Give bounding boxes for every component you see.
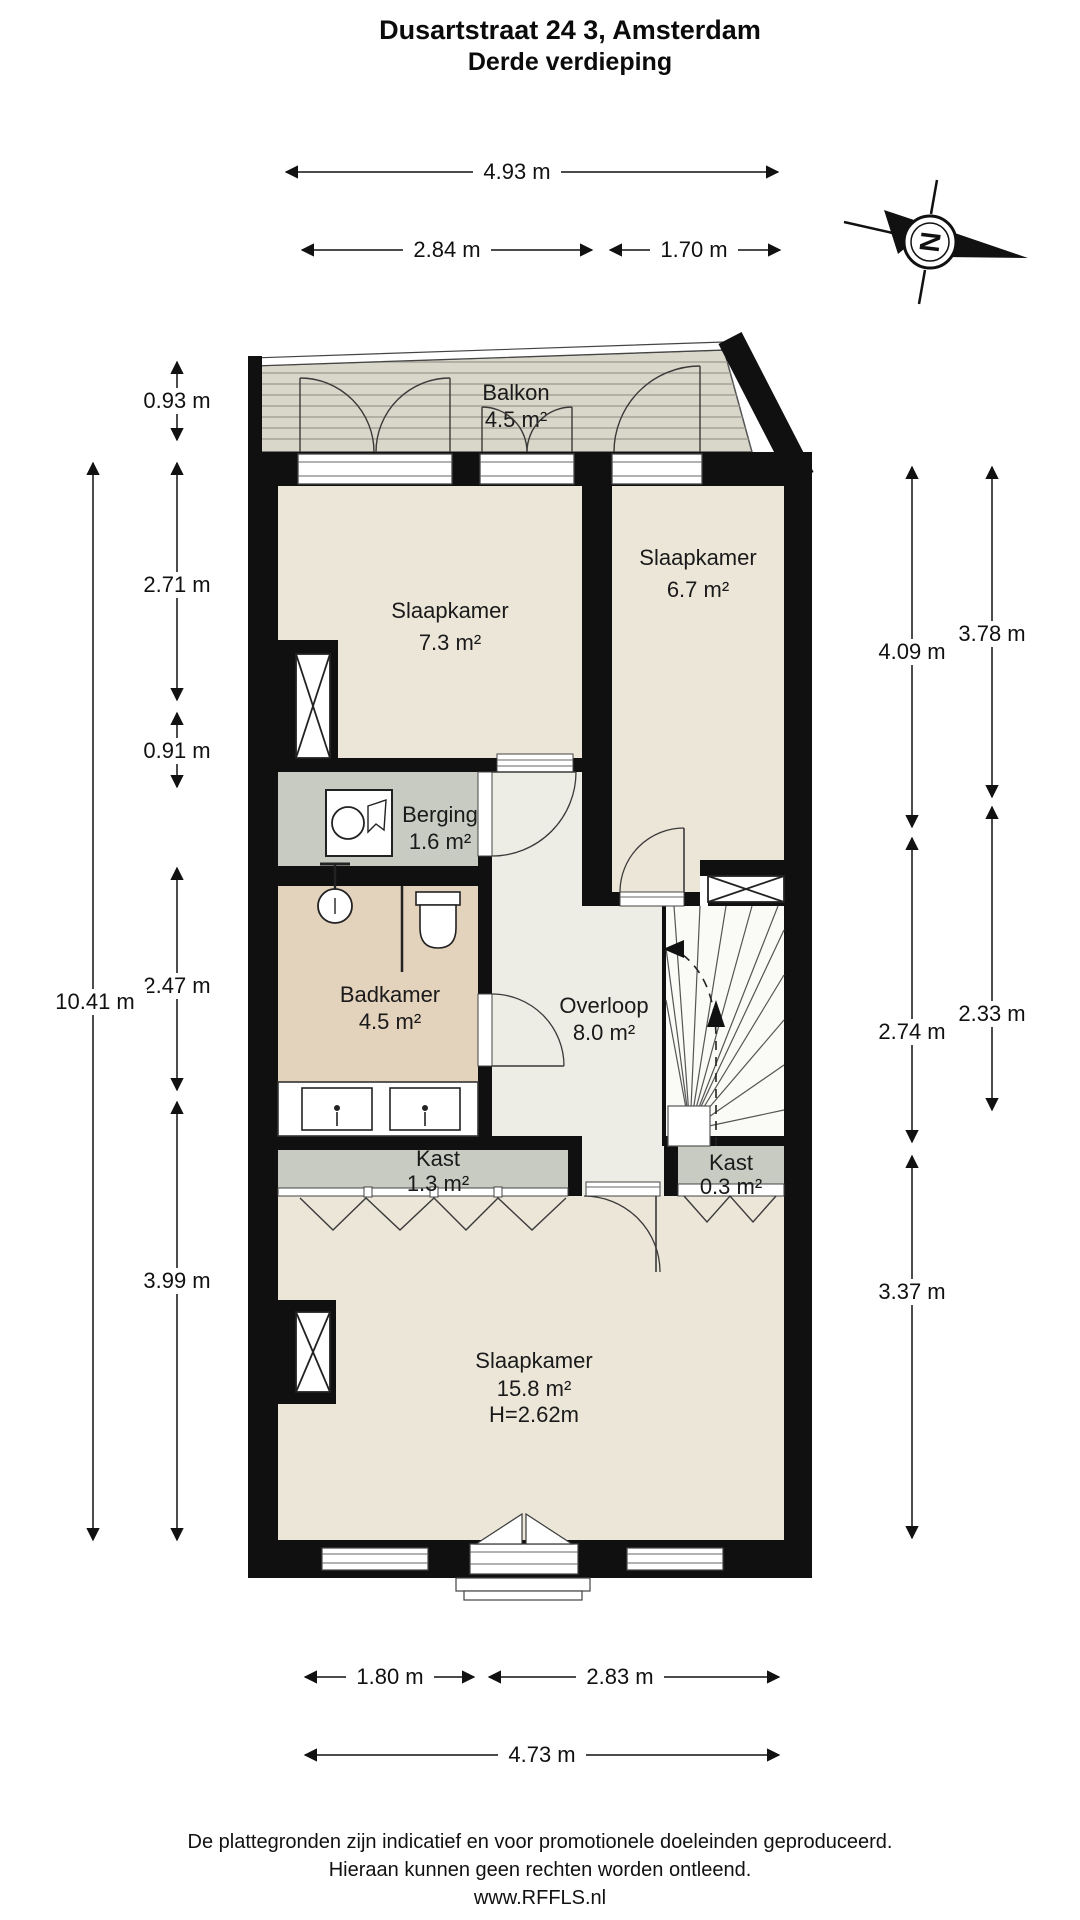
footer: De plattegronden zijn indicatief en voor… — [0, 1828, 1080, 1912]
dim-bottom-left: 1.80 m — [356, 1664, 423, 1689]
title-block: Dusartstraat 24 3, Amsterdam Derde verdi… — [130, 14, 1010, 77]
room-area-badkamer: 4.5 m² — [359, 1009, 421, 1034]
chimney-shaft2-icon — [296, 1312, 330, 1392]
stair-landing — [668, 1106, 710, 1146]
floorplan-page: Dusartstraat 24 3, Amsterdam Derde verdi… — [0, 0, 1080, 1920]
room-area-slaapkamer-groot: 15.8 m² — [497, 1376, 572, 1401]
dim-bottom-total: 4.73 m — [508, 1742, 575, 1767]
floor-overloop — [492, 758, 582, 1136]
room-label-kast-groot: Kast — [416, 1146, 460, 1171]
dim-left-3: 2.47 m — [143, 973, 210, 998]
room-area-berging: 1.6 m² — [409, 829, 471, 854]
washing-machine-icon — [326, 790, 392, 856]
compass: N — [844, 180, 1028, 304]
dim-top-right: 1.70 m — [660, 237, 727, 262]
room-label-overloop: Overloop — [559, 993, 648, 1018]
room-label-slaapkamer-links: Slaapkamer — [391, 598, 508, 623]
window-right — [627, 1548, 723, 1570]
room-label-slaapkamer-groot: Slaapkamer — [475, 1348, 592, 1373]
footer-website: www.RFFLS.nl — [0, 1884, 1080, 1912]
page-title: Dusartstraat 24 3, Amsterdam — [130, 14, 1010, 47]
dim-left-2: 0.91 m — [143, 738, 210, 763]
dim-top-left: 2.84 m — [413, 237, 480, 262]
footer-disclaimer-line1: De plattegronden zijn indicatief en voor… — [0, 1828, 1080, 1856]
room-area-balkon: 4.5 m² — [485, 407, 547, 432]
dim-left-balkon: 0.93 m — [143, 388, 210, 413]
room-label-balkon: Balkon — [482, 380, 549, 405]
chimney-shaft-icon — [296, 654, 330, 758]
toilet-icon — [416, 892, 460, 948]
floorplan-svg: Balkon 4.5 m² — [0, 0, 1080, 1920]
room-balkon: Balkon 4.5 m² — [248, 342, 756, 452]
room-area-slaapkamer-links: 7.3 m² — [419, 630, 481, 655]
room-label-berging: Berging — [402, 802, 478, 827]
doorway-slaapkamer-links — [497, 754, 573, 772]
window-left — [322, 1548, 428, 1570]
room-label-badkamer: Badkamer — [340, 982, 440, 1007]
dim-right-5: 3.37 m — [878, 1279, 945, 1304]
room-area-kast-groot: 1.3 m² — [407, 1171, 469, 1196]
vent-shaft-icon — [708, 876, 784, 902]
dim-right-4: 2.33 m — [958, 1001, 1025, 1026]
floor-subtitle: Derde verdieping — [130, 47, 1010, 77]
dim-right-2: 3.78 m — [958, 621, 1025, 646]
room-height-slaapkamer-groot: H=2.62m — [489, 1402, 579, 1427]
north-label: N — [913, 230, 946, 254]
washbasin-counter — [278, 1082, 478, 1136]
sink-icon — [302, 1088, 372, 1130]
room-label-slaapkamer-rechts: Slaapkamer — [639, 545, 756, 570]
room-area-slaapkamer-rechts: 6.7 m² — [667, 577, 729, 602]
sink-icon-2 — [390, 1088, 460, 1130]
footer-disclaimer-line2: Hieraan kunnen geen rechten worden ontle… — [0, 1856, 1080, 1884]
room-area-kast-klein: 0.3 m² — [700, 1174, 762, 1199]
dim-right-3: 2.74 m — [878, 1019, 945, 1044]
dim-left-total: 10.41 m — [55, 989, 135, 1014]
floor-overloop-corridor — [582, 906, 664, 1196]
dim-bottom-right: 2.83 m — [586, 1664, 653, 1689]
room-label-kast-klein: Kast — [709, 1150, 753, 1175]
dim-left-1: 2.71 m — [143, 572, 210, 597]
dim-top-total: 4.93 m — [483, 159, 550, 184]
dim-right-1: 4.09 m — [878, 639, 945, 664]
dim-left-4: 3.99 m — [143, 1268, 210, 1293]
room-area-overloop: 8.0 m² — [573, 1020, 635, 1045]
